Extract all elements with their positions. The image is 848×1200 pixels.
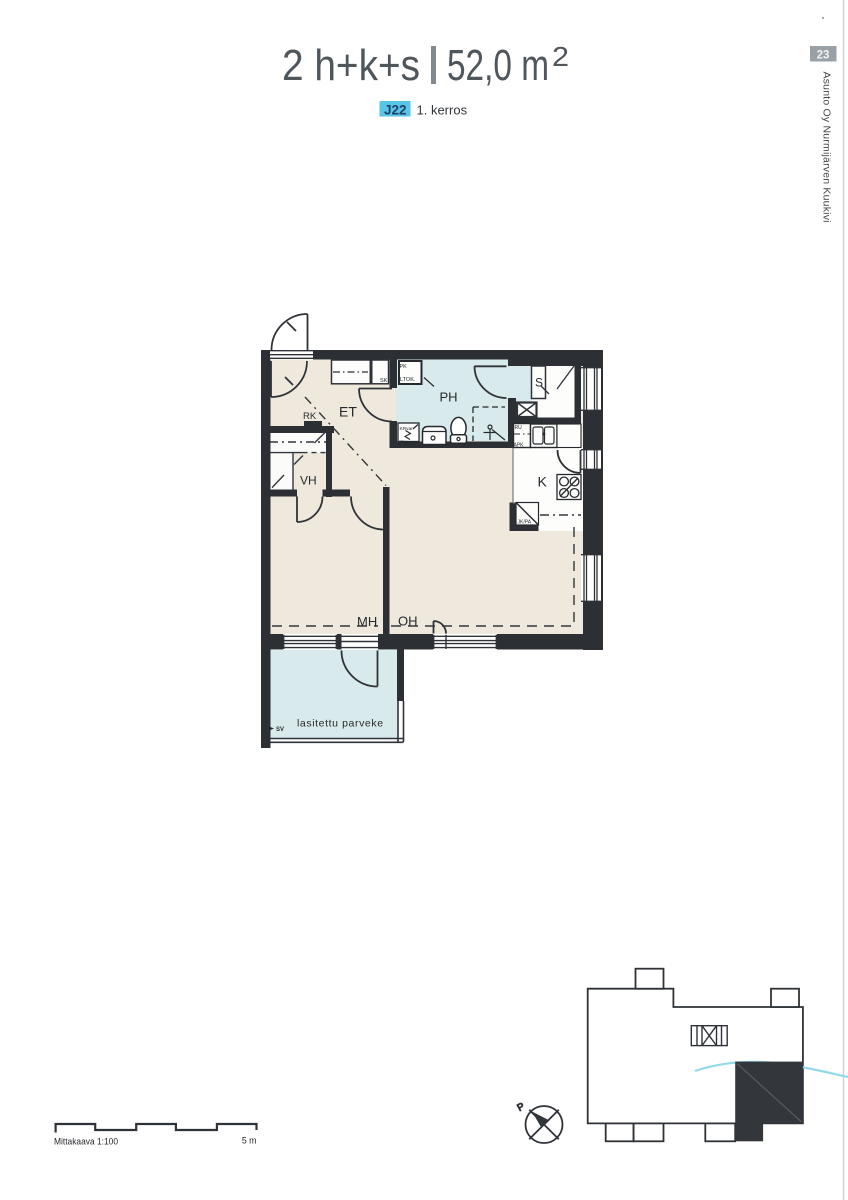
svg-text:S: S: [535, 376, 543, 390]
svg-text:23: 23: [817, 50, 830, 62]
svg-text:52,0 m: 52,0 m: [447, 41, 549, 90]
svg-text:Mittakaava 1:100: Mittakaava 1:100: [54, 1137, 118, 1147]
svg-text:K: K: [538, 474, 548, 490]
svg-text:SV: SV: [276, 727, 284, 733]
svg-text:Asunto Oy Nurmijärven Kuukivi: Asunto Oy Nurmijärven Kuukivi: [821, 72, 833, 223]
svg-text:2 h+k+s: 2 h+k+s: [282, 41, 420, 90]
svg-text:PH: PH: [440, 390, 458, 405]
svg-text:P: P: [516, 1101, 527, 1114]
svg-text:MH: MH: [357, 614, 377, 629]
svg-text:ET: ET: [339, 404, 357, 420]
svg-text:J22: J22: [384, 103, 407, 118]
svg-text:RK: RK: [303, 411, 317, 422]
svg-text:KRvar: KRvar: [400, 426, 414, 432]
svg-text:SK: SK: [380, 378, 388, 384]
svg-text:2: 2: [552, 41, 569, 72]
svg-text:LTOK.: LTOK.: [400, 377, 416, 383]
svg-text:JK/PA: JK/PA: [518, 520, 532, 526]
svg-text:lasitettu parveke: lasitettu parveke: [297, 718, 384, 730]
svg-text:VH: VH: [300, 474, 317, 488]
svg-text:RU: RU: [515, 425, 523, 431]
svg-text:APK: APK: [514, 443, 525, 449]
svg-text:1. kerros: 1. kerros: [417, 103, 468, 118]
svg-text:JPKvar: JPKvar: [399, 440, 415, 446]
svg-text:OH: OH: [398, 614, 418, 629]
svg-text:5 m: 5 m: [242, 1136, 257, 1146]
svg-text:PK: PK: [400, 364, 408, 370]
